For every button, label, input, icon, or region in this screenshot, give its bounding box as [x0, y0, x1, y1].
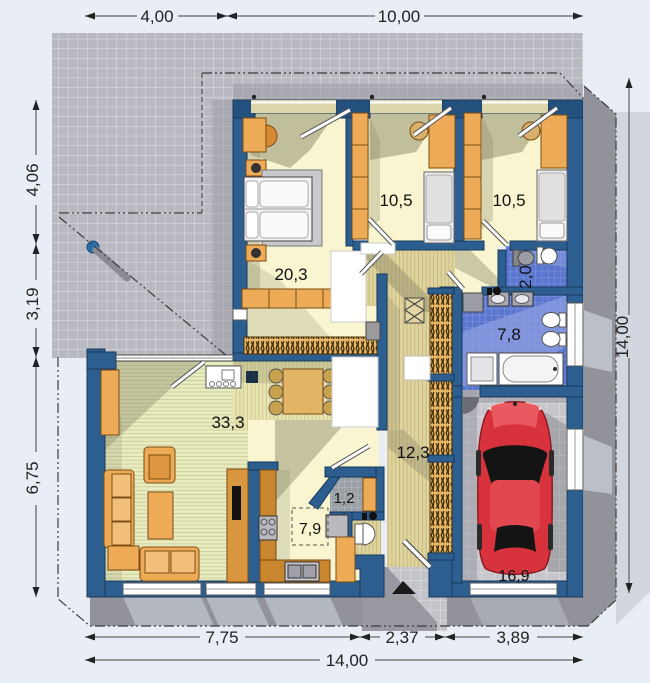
svg-text:2,0: 2,0 [516, 265, 535, 289]
svg-text:7,9: 7,9 [299, 521, 321, 538]
svg-text:7,75: 7,75 [205, 628, 238, 647]
svg-text:16,9: 16,9 [498, 568, 529, 585]
svg-text:14,00: 14,00 [326, 651, 369, 670]
svg-text:10,5: 10,5 [379, 191, 412, 210]
svg-text:4,00: 4,00 [140, 7, 173, 26]
svg-text:10,00: 10,00 [378, 7, 421, 26]
svg-text:6,75: 6,75 [23, 461, 42, 494]
svg-text:14,00: 14,00 [613, 316, 632, 359]
svg-text:10,5: 10,5 [492, 191, 525, 210]
svg-text:3,19: 3,19 [23, 287, 42, 320]
svg-text:2,37: 2,37 [385, 628, 418, 647]
svg-text:33,3: 33,3 [211, 413, 244, 432]
svg-text:3,89: 3,89 [496, 628, 529, 647]
svg-text:1,2: 1,2 [334, 490, 355, 507]
svg-text:20,3: 20,3 [274, 265, 307, 284]
svg-text:7,8: 7,8 [497, 325, 521, 344]
svg-text:4,06: 4,06 [23, 163, 42, 196]
svg-text:12,3: 12,3 [396, 443, 429, 462]
